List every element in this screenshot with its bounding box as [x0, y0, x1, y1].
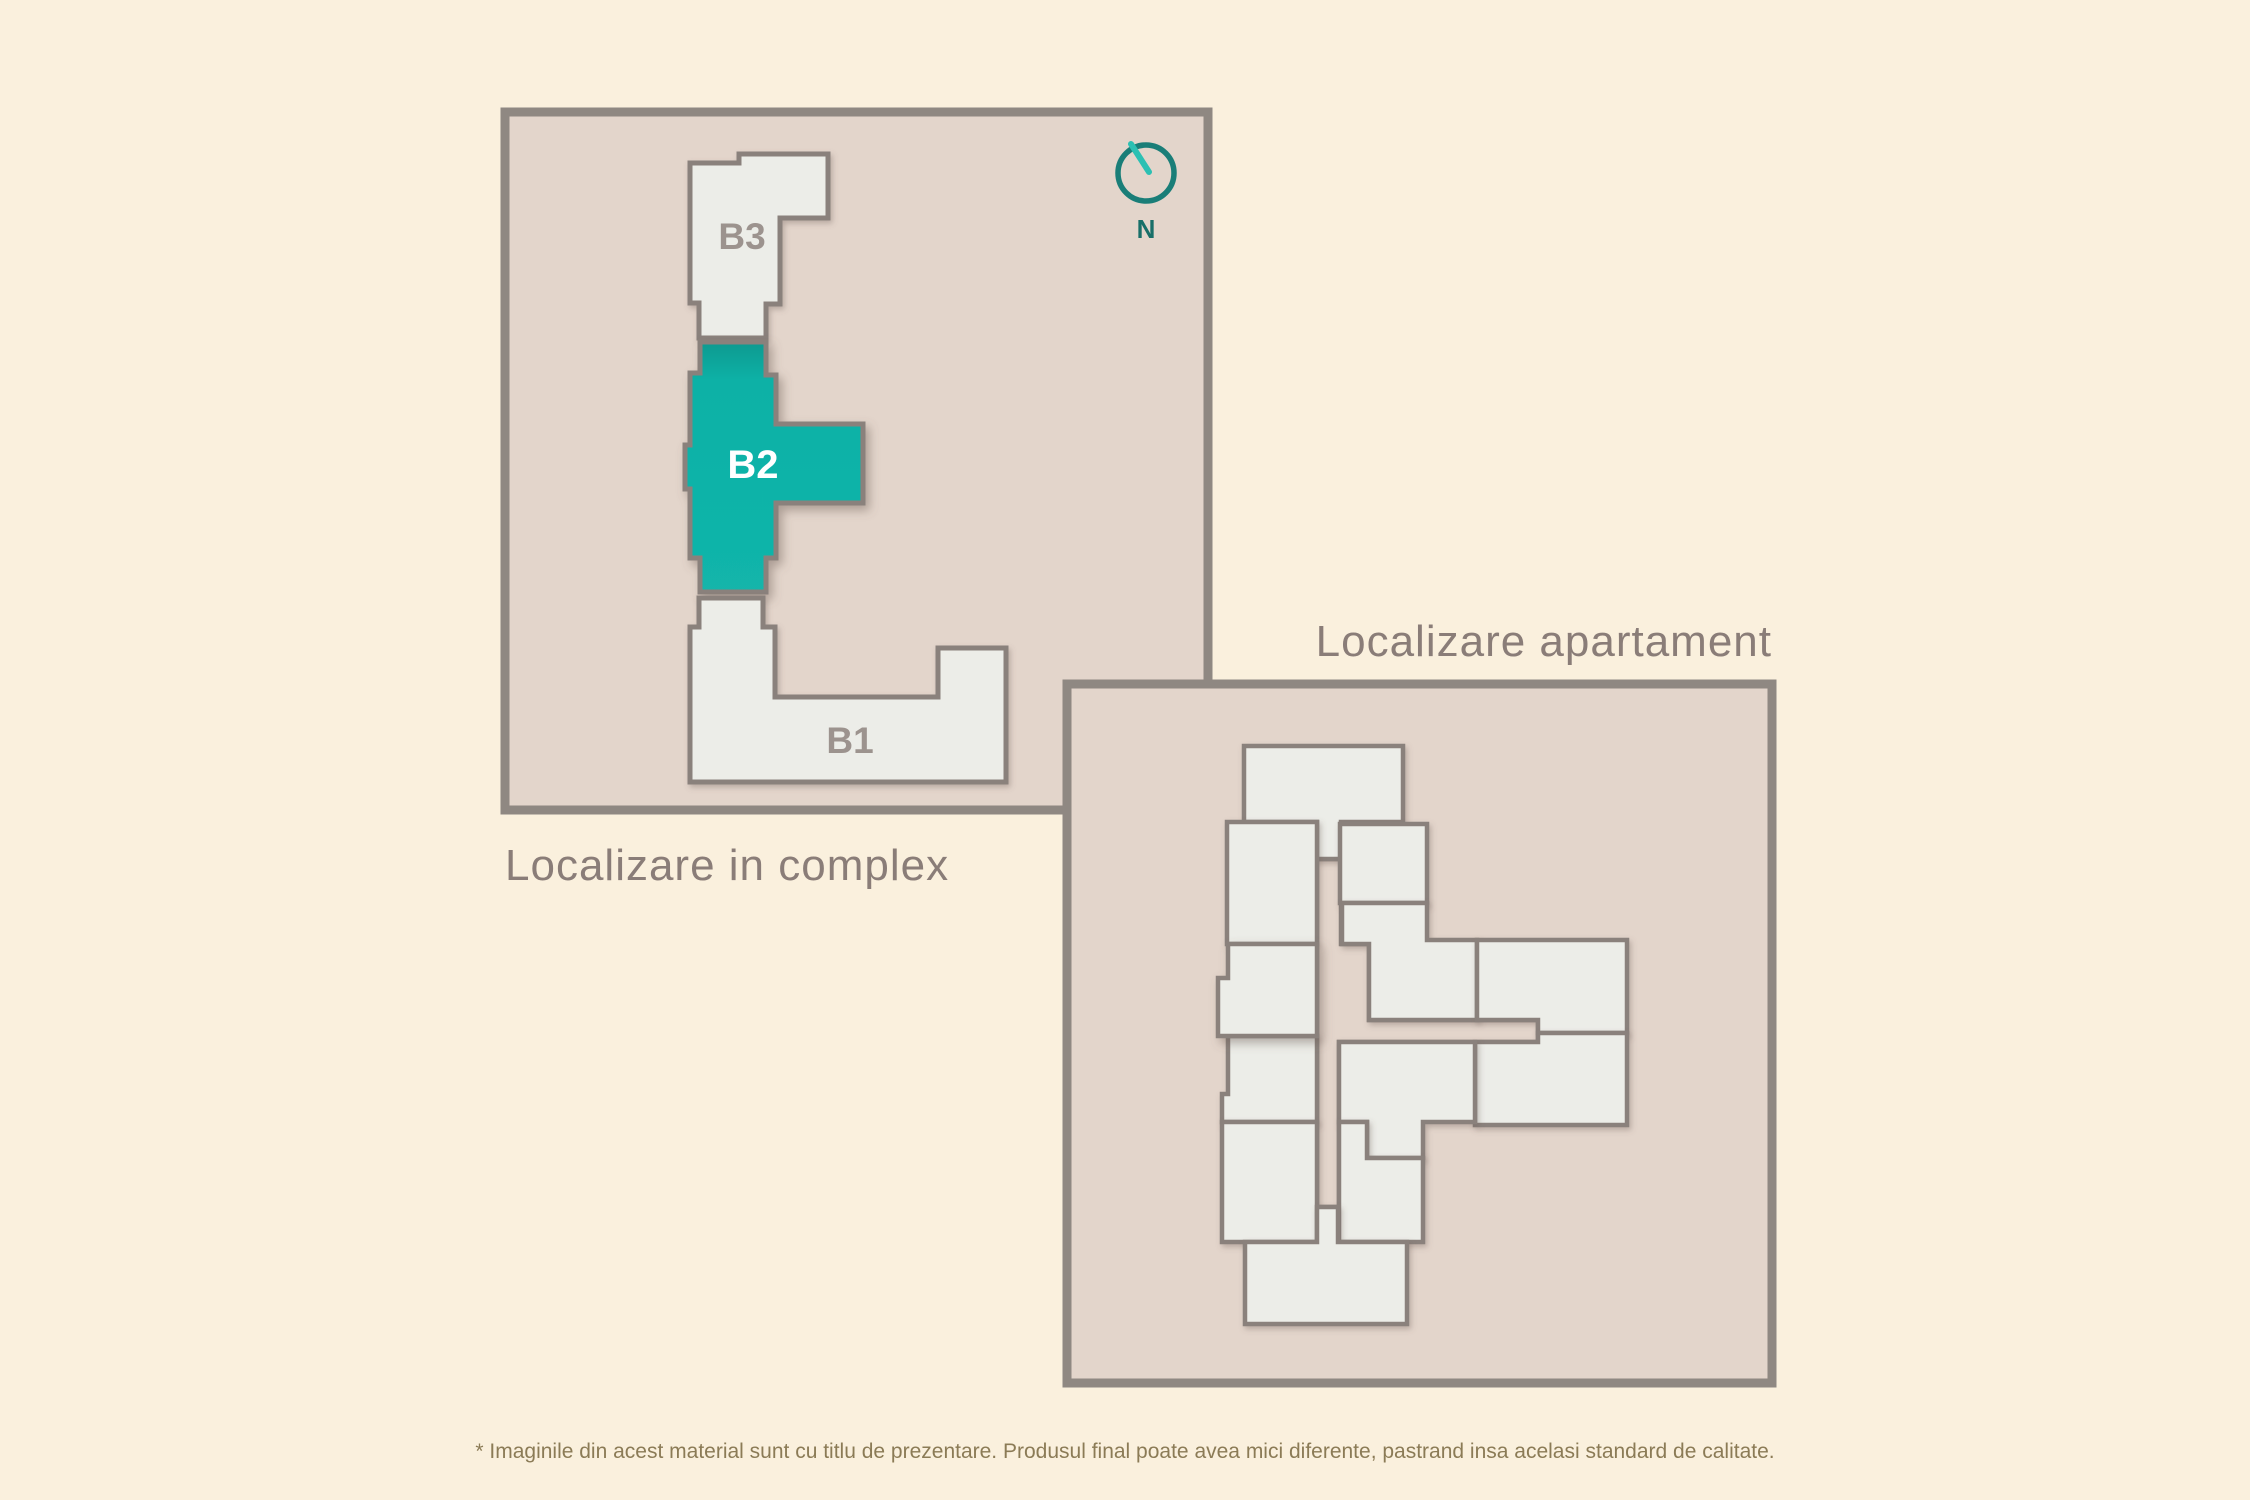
- building-b2-label: B2: [727, 443, 778, 487]
- page: B3 B2 B1 N: [0, 0, 2250, 1500]
- complex-map-title: Localizare in complex: [505, 842, 1225, 890]
- selected-apartment-unit[interactable]: [1218, 944, 1317, 1036]
- plans-canvas: B3 B2 B1 N: [0, 0, 2250, 1500]
- room-upper-right: [1340, 824, 1427, 903]
- room-left-upper: [1227, 822, 1317, 944]
- room-right-upper: [1477, 940, 1627, 1033]
- apartment-map-panel: [1067, 684, 1772, 1383]
- disclaimer-text: * Imaginile din acest material sunt cu t…: [0, 1440, 2250, 1464]
- compass-north-label: N: [1137, 214, 1156, 244]
- building-b1-label: B1: [826, 720, 873, 761]
- room-left-middle: [1222, 1036, 1317, 1122]
- room-left-lower: [1222, 1122, 1317, 1242]
- apartment-map-title: Localizare apartament: [1067, 618, 1772, 666]
- building-b3-label: B3: [718, 216, 765, 257]
- room-right-lower: [1475, 1033, 1627, 1125]
